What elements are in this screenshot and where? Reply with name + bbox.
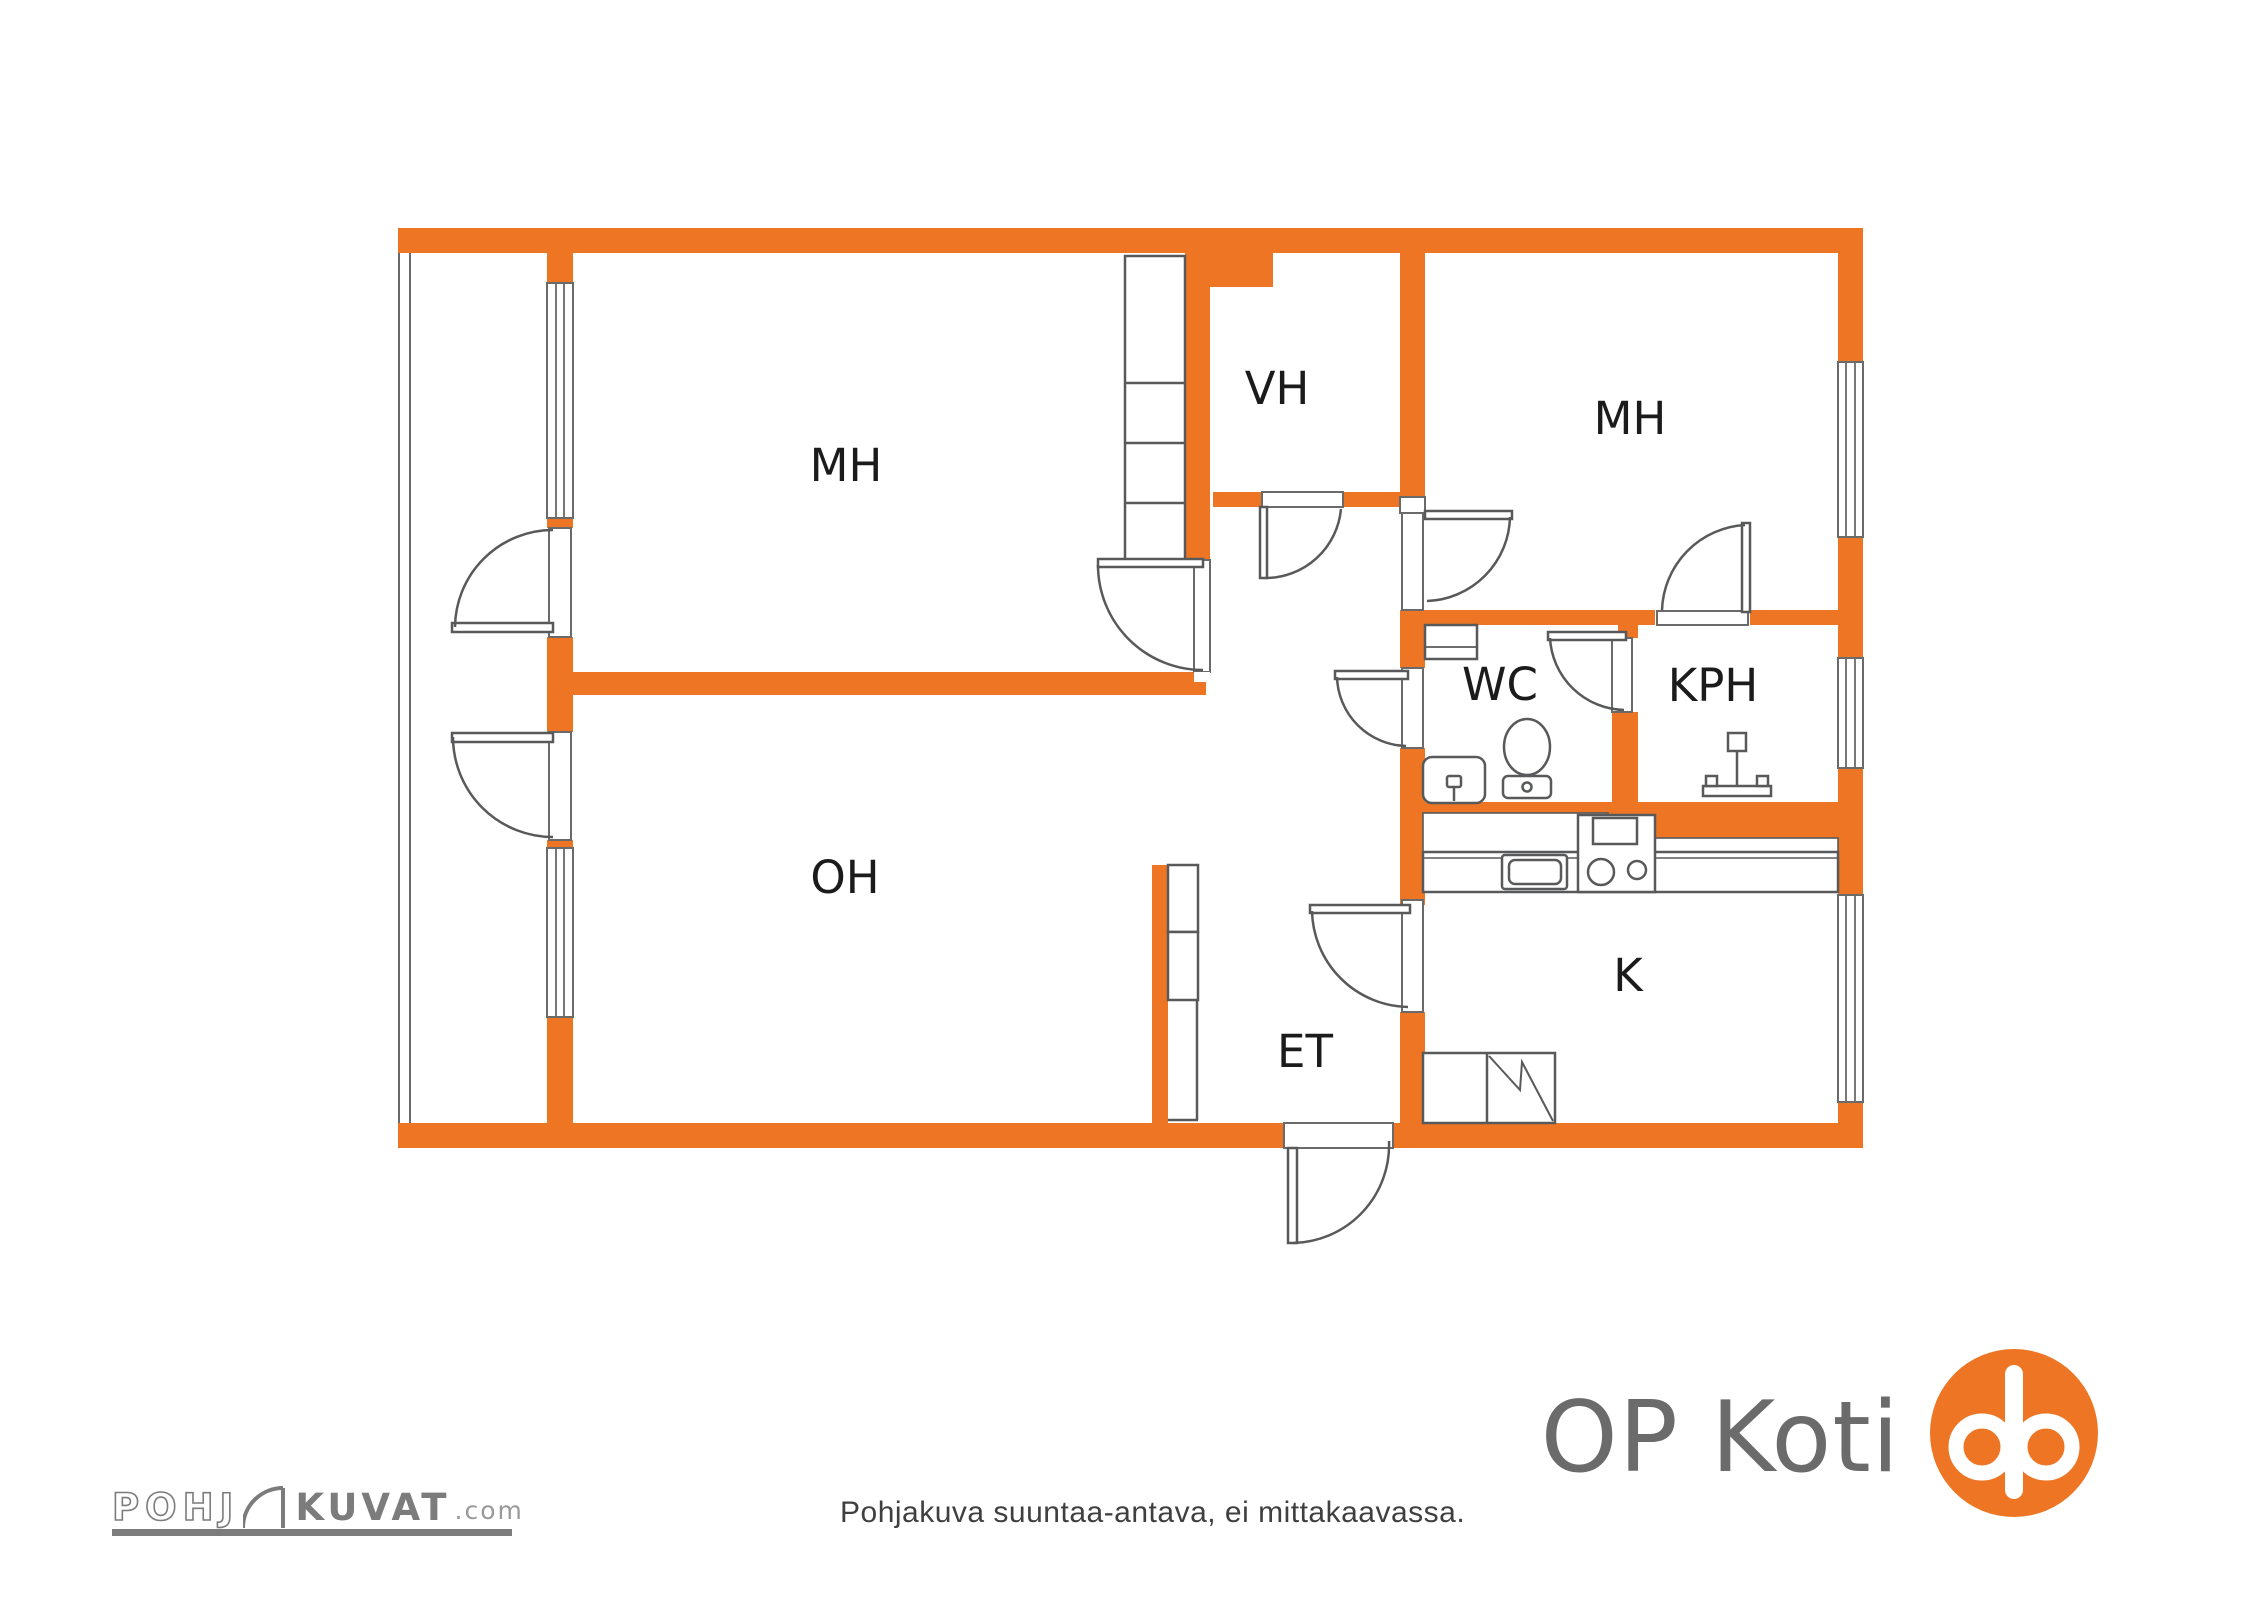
wardrobe-kitchen [1423, 1053, 1555, 1123]
room-label-k: K [1613, 949, 1644, 1002]
room-label-et: ET [1277, 1025, 1333, 1078]
door-arc-icon [243, 1484, 291, 1530]
pohjakuvat-main: KUVAT [295, 1488, 450, 1528]
stove [1578, 815, 1655, 892]
door-vh [1260, 507, 1341, 578]
pohjakuvat-logo: POHJ KUVAT .com [112, 1482, 524, 1528]
door-kph [1662, 523, 1750, 612]
cabinet-et [1168, 865, 1198, 1120]
door-balcony-mh1 [452, 530, 553, 632]
pohjakuvat-underline [112, 1529, 512, 1536]
room-label-oh: OH [810, 851, 879, 904]
divider-end-cap [1194, 672, 1210, 682]
door-entrance [1288, 1141, 1389, 1243]
op-logo-icon [1930, 1349, 2098, 1517]
wardrobe-mh1 [1125, 256, 1185, 563]
shower-fixture [1703, 733, 1771, 796]
room-label-vh: VH [1245, 362, 1310, 415]
wc-shelf [1425, 625, 1477, 659]
room-label-wc: WC [1462, 658, 1538, 711]
door-wc [1335, 671, 1408, 746]
floor-plan-page: MH VH MH WC KPH OH ET K POHJ KUVAT .com … [0, 0, 2262, 1600]
room-label-mh-left: MH [810, 439, 883, 492]
door-mh1 [1098, 559, 1203, 670]
door-balcony-oh [452, 733, 553, 837]
disclaimer-text: Pohjakuva suuntaa-antava, ei mittakaavas… [840, 1496, 1465, 1530]
op-koti-wordmark: OP Koti [1541, 1389, 1900, 1487]
kitchen-sink [1502, 855, 1567, 889]
door-mh2 [1425, 511, 1512, 601]
balcony-rail [399, 253, 410, 1123]
floor-plan-drawing: MH VH MH WC KPH OH ET K [0, 0, 2262, 1600]
room-label-kph: KPH [1668, 659, 1758, 712]
room-label-mh-right: MH [1594, 392, 1667, 445]
wc-sink [1423, 757, 1485, 803]
pohjakuvat-prefix: POHJ [112, 1488, 239, 1528]
door-kitchen [1310, 905, 1410, 1007]
pohjakuvat-suffix: .com [455, 1494, 524, 1528]
toilet [1503, 719, 1551, 798]
